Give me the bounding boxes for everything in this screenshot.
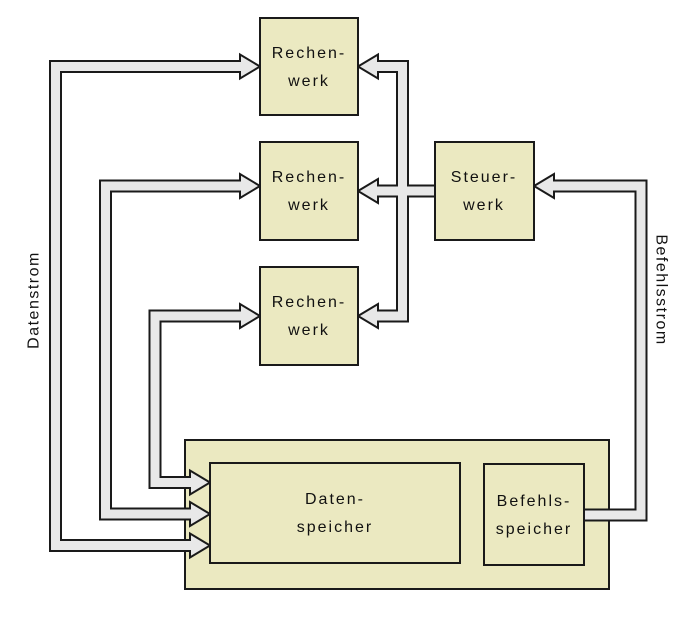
edge-control-up-infill <box>376 67 403 192</box>
arrowhead-into-rechenwerk-bottom-left <box>240 304 260 328</box>
datenspeicher-label-line2: speicher <box>297 519 373 536</box>
arrowhead-into-rechenwerk-middle-left <box>240 174 260 198</box>
steuerwerk-label-line1: Steuer- <box>451 169 517 186</box>
rechenwerk-bottom-label-line1: Rechen- <box>272 294 346 311</box>
rechenwerk-top-label-line2: werk <box>287 73 330 90</box>
rechenwerk-top-label-line1: Rechen- <box>272 45 346 62</box>
arrowhead-into-steuerwerk <box>534 174 554 198</box>
arrowhead-into-rechenwerk-middle-right <box>358 179 378 203</box>
rechenwerk-bottom-label-line2: werk <box>287 322 330 339</box>
diagram-canvas: Rechen- werk Rechen- werk Rechen- werk S… <box>0 0 693 620</box>
rechenwerk-top-box <box>260 18 358 115</box>
befehlsspeicher-box <box>484 464 584 565</box>
befehlsstrom-label: Befehlsstrom <box>653 234 670 345</box>
simd-architecture-diagram: Rechen- werk Rechen- werk Rechen- werk S… <box>0 0 693 620</box>
datenstrom-label: Datenstrom <box>26 251 43 349</box>
rechenwerk-middle-label-line2: werk <box>287 197 330 214</box>
steuerwerk-label-line2: werk <box>462 197 505 214</box>
steuerwerk-box <box>435 142 534 240</box>
arrowhead-into-rechenwerk-top-right <box>358 55 378 79</box>
rechenwerk-middle-box <box>260 142 358 240</box>
datenspeicher-label-line1: Daten- <box>305 491 365 508</box>
edge-control-down-infill <box>376 191 403 316</box>
rechenwerk-middle-label-line1: Rechen- <box>272 169 346 186</box>
befehlsspeicher-label-line1: Befehls- <box>497 493 572 510</box>
datenspeicher-box <box>210 463 460 563</box>
befehlsspeicher-label-line2: speicher <box>496 521 572 538</box>
arrowhead-into-rechenwerk-top-left <box>240 55 260 79</box>
rechenwerk-bottom-box <box>260 267 358 365</box>
arrowhead-into-rechenwerk-bottom-right <box>358 304 378 328</box>
